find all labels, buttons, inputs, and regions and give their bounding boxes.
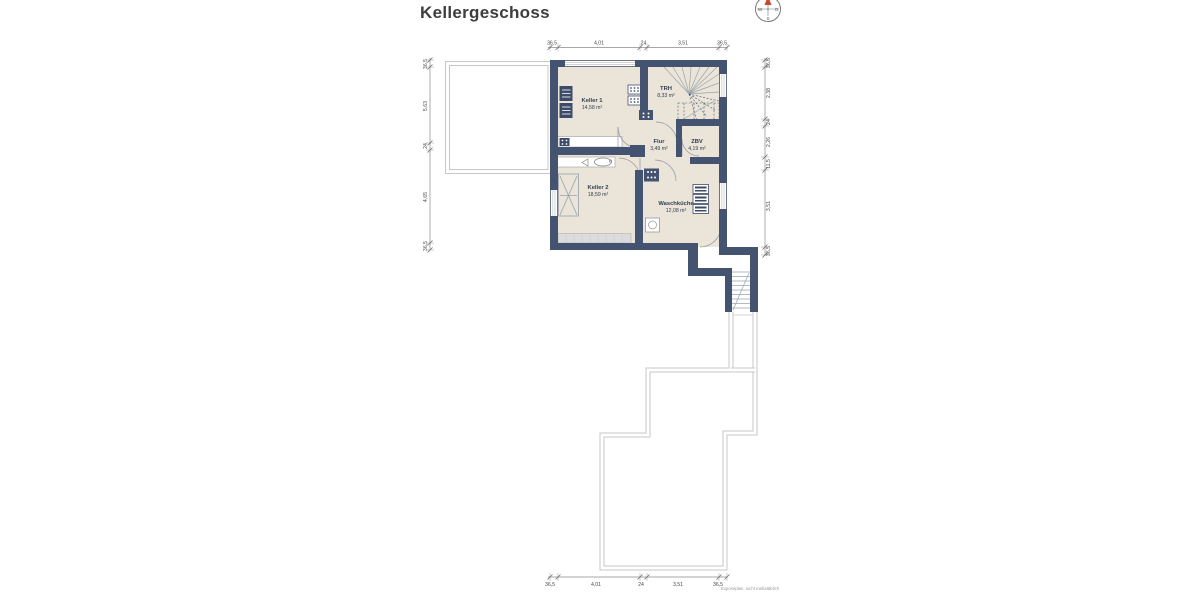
svg-text:36,5: 36,5 <box>547 41 557 47</box>
svg-text:Keller 1: Keller 1 <box>582 98 604 104</box>
svg-text:O: O <box>775 7 779 12</box>
keller2-sink-counter-icon <box>555 157 615 167</box>
svg-text:3,51: 3,51 <box>673 582 683 588</box>
dimension-line-bottom: 36,5 4,01 24 3,51 36,5 <box>545 573 730 588</box>
svg-text:24: 24 <box>638 582 644 588</box>
svg-text:4,65: 4,65 <box>423 192 429 202</box>
svg-text:4,19 m²: 4,19 m² <box>688 146 706 152</box>
keller2-workbench-icon <box>558 234 631 244</box>
svg-text:S: S <box>766 16 769 21</box>
svg-text:18,59 m²: 18,59 m² <box>588 192 609 198</box>
svg-text:12,08 m²: 12,08 m² <box>666 208 687 214</box>
keller1-counter-icon <box>558 137 622 148</box>
svg-text:36,5: 36,5 <box>423 59 429 69</box>
dimension-line-right: 36,5 2,38 24 2,26 11,5 3,51 36,5 <box>761 58 772 258</box>
svg-text:36,5: 36,5 <box>766 246 772 256</box>
floor-plan-drawing: Keller 1 14,58 m² TRH 8,33 m² Flur 3,49 … <box>0 0 1200 600</box>
svg-text:36,5: 36,5 <box>766 58 772 68</box>
svg-text:36,5: 36,5 <box>423 241 429 251</box>
waschkueche-boiler-icon <box>644 169 659 182</box>
svg-text:8,33 m²: 8,33 m² <box>657 93 675 99</box>
page-title: Kellergeschoss <box>420 3 550 22</box>
floor-plan-page: Keller 1 14,58 m² TRH 8,33 m² Flur 3,49 … <box>0 0 1200 600</box>
svg-text:Flur: Flur <box>654 139 666 145</box>
svg-text:4,01: 4,01 <box>594 41 604 47</box>
washer-dryer-stack-icon <box>693 185 709 214</box>
svg-text:2,26: 2,26 <box>766 137 772 147</box>
upper-floor-outline-top-left <box>448 64 551 172</box>
svg-text:ZBV: ZBV <box>691 139 703 145</box>
svg-text:W: W <box>758 7 763 12</box>
waschkueche-sink-icon <box>646 218 660 232</box>
svg-text:5,63: 5,63 <box>423 101 429 111</box>
dimension-line-top: 36,5 4,01 24 3,51 36,5 <box>547 41 730 52</box>
footer-note: Exposéplan, nicht maßstäblich <box>721 586 780 591</box>
trh-window <box>720 74 726 97</box>
compass-icon: W O + S <box>756 0 781 22</box>
svg-text:+: + <box>767 7 770 12</box>
room-label-keller1: Keller 1 14,58 m² <box>582 98 604 111</box>
svg-text:3,49 m²: 3,49 m² <box>650 146 668 152</box>
flur-heater-icon <box>639 110 653 120</box>
upper-floor-outline-bottom <box>602 312 755 568</box>
exterior-stairs <box>732 272 754 315</box>
svg-text:24: 24 <box>423 143 429 149</box>
svg-text:11,5: 11,5 <box>766 159 772 169</box>
waschkueche-window <box>720 183 726 209</box>
svg-text:24: 24 <box>766 119 772 125</box>
keller2-window <box>551 190 557 216</box>
svg-text:Waschküche: Waschküche <box>658 201 694 207</box>
svg-text:14,58 m²: 14,58 m² <box>582 105 603 111</box>
svg-text:3,51: 3,51 <box>678 41 688 47</box>
keller1-window <box>565 61 635 66</box>
svg-text:36,5: 36,5 <box>717 41 727 47</box>
svg-text:Keller 2: Keller 2 <box>588 185 609 191</box>
svg-text:TRH: TRH <box>660 86 672 92</box>
room-label-keller2: Keller 2 18,59 m² <box>588 185 609 198</box>
svg-text:24: 24 <box>641 41 647 47</box>
svg-text:4,01: 4,01 <box>591 582 601 588</box>
svg-text:3,51: 3,51 <box>766 201 772 211</box>
dimension-line-left: 36,5 5,63 24 4,65 36,5 <box>423 58 434 253</box>
svg-text:36,5: 36,5 <box>545 582 555 588</box>
svg-text:2,38: 2,38 <box>766 88 772 98</box>
